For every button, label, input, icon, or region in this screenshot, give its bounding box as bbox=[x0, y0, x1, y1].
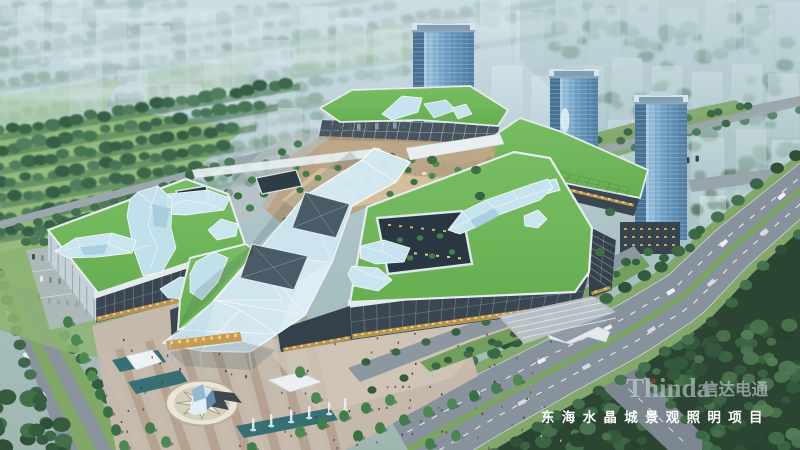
svg-text:东海水晶城景观照明项目: 东海水晶城景观照明项目 bbox=[541, 409, 770, 425]
svg-text:Thinda: Thinda bbox=[626, 373, 711, 403]
svg-text:信达电通: 信达电通 bbox=[702, 379, 769, 399]
